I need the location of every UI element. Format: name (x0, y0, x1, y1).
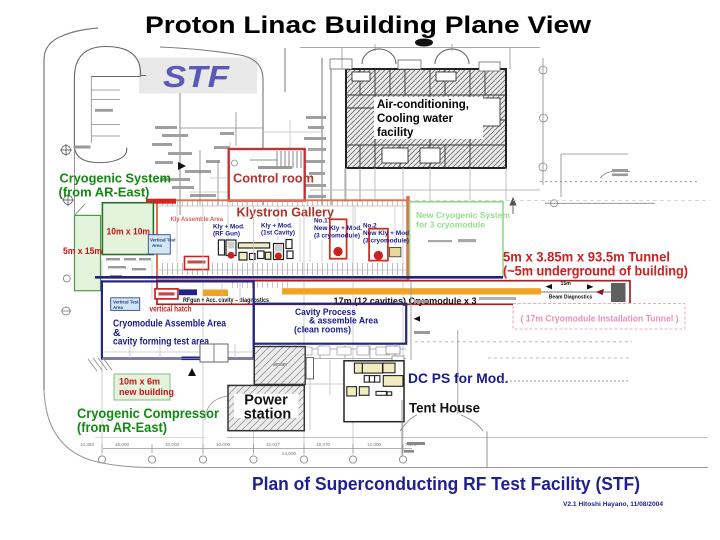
svg-text:Plan of Superconducting RF Tes: Plan of Superconducting RF Test Facility… (252, 474, 640, 494)
svg-text:No.2: No.2 (363, 223, 377, 230)
svg-text:Kly + Mod.: Kly + Mod. (261, 223, 293, 230)
svg-text:(3 cryomodule): (3 cryomodule) (363, 238, 409, 245)
svg-text:Kly Assemble Area: Kly Assemble Area (171, 216, 224, 223)
svg-text:(~5m underground of building): (~5m underground of building) (503, 264, 688, 279)
svg-text:Cooling water: Cooling water (377, 113, 454, 125)
svg-text:Beam Diagnostics: Beam Diagnostics (549, 294, 593, 300)
svg-text:5m x 15m: 5m x 15m (63, 246, 102, 257)
svg-text:16,000: 16,000 (115, 442, 129, 447)
svg-text:(RF Gun): (RF Gun) (213, 230, 240, 237)
svg-text:10m x 10m: 10m x 10m (107, 227, 151, 238)
svg-text:(1st Cavity): (1st Cavity) (261, 230, 295, 237)
svg-text:10,000: 10,000 (165, 442, 179, 447)
svg-text:(from AR-East): (from AR-East) (59, 185, 150, 200)
svg-text:V2.1 Hitoshi Hayano, 11/08/200: V2.1 Hitoshi Hayano, 11/08/2004 (563, 501, 663, 508)
svg-text:STF: STF (163, 59, 230, 94)
svg-text:Proton Linac Building Plane Vi: Proton Linac Building Plane View (145, 12, 592, 39)
svg-text:19,370: 19,370 (316, 442, 330, 447)
svg-text:10,352: 10,352 (80, 442, 94, 447)
svg-text:24,000: 24,000 (282, 451, 296, 456)
svg-text:10,000: 10,000 (216, 442, 230, 447)
svg-text:10m x 6m: 10m x 6m (119, 377, 160, 387)
svg-text:cavity forming test area: cavity forming test area (113, 336, 209, 348)
svg-text:Vertical Test: Vertical Test (150, 238, 176, 243)
svg-text:10,027: 10,027 (266, 442, 280, 447)
svg-text:Tent House: Tent House (409, 400, 480, 416)
svg-text:12,000: 12,000 (367, 442, 381, 447)
svg-text:(from AR-East): (from AR-East) (77, 420, 167, 435)
svg-text:New Cryogenic System: New Cryogenic System (416, 210, 510, 220)
svg-text:facility: facility (377, 127, 414, 139)
svg-text:Cryogenic Compressor: Cryogenic Compressor (77, 406, 220, 421)
svg-text:Cryogenic System: Cryogenic System (60, 171, 172, 186)
svg-text:Air-conditioning,: Air-conditioning, (377, 99, 469, 111)
svg-text:15m: 15m (561, 281, 572, 287)
svg-text:DC PS for Mod.: DC PS for Mod. (408, 370, 509, 386)
svg-text:(clean rooms): (clean rooms) (294, 324, 351, 335)
svg-text:New Kly + Mod.: New Kly + Mod. (314, 225, 362, 232)
svg-text:New Kly + Mod.: New Kly + Mod. (363, 230, 411, 237)
svg-text:Area: Area (113, 305, 123, 310)
svg-text:Kly + Mod.: Kly + Mod. (213, 223, 245, 230)
svg-text:for 3 cryomodule: for 3 cryomodule (416, 220, 485, 230)
svg-text:Area: Area (152, 243, 162, 248)
svg-text:Vertical Test: Vertical Test (113, 300, 139, 305)
svg-text:Control room: Control room (233, 171, 314, 186)
svg-text:5m x 3.85m x 93.5m Tunnel: 5m x 3.85m x 93.5m Tunnel (503, 250, 670, 265)
svg-text:( 17m Cryomodule Installation: ( 17m Cryomodule Installation Tunnel ) (521, 313, 679, 323)
svg-text:Cryomodule Assemble Area: Cryomodule Assemble Area (113, 318, 226, 330)
svg-text:vertical hatch: vertical hatch (150, 305, 192, 314)
svg-text:No.1: No.1 (314, 218, 328, 225)
svg-text:new building: new building (119, 387, 174, 397)
svg-text:station: station (244, 407, 292, 423)
